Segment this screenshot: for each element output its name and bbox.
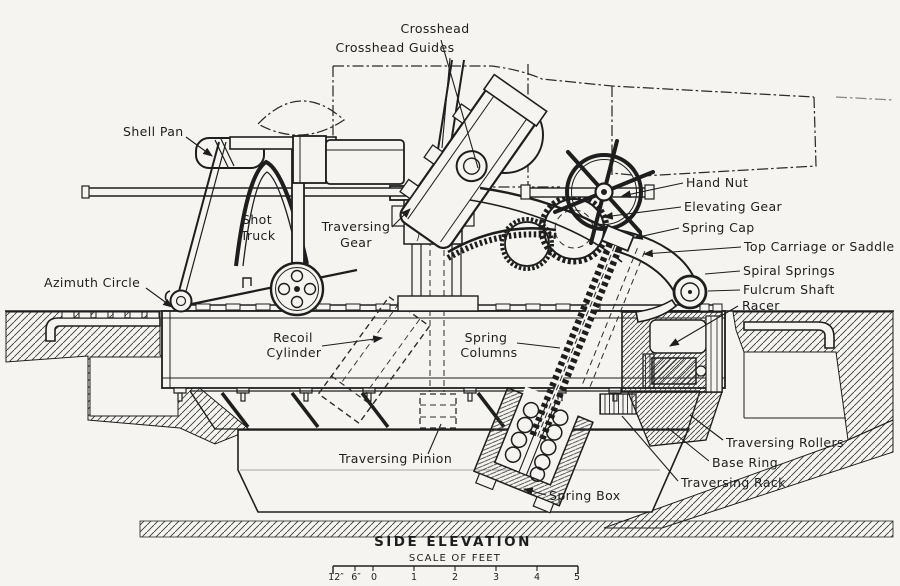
label-base-ring: Base Ring xyxy=(712,455,778,470)
label-spring-columns-2: Columns xyxy=(460,345,517,360)
scale-caption: SCALE OF FEET xyxy=(409,553,501,564)
label-shot-truck-2: Truck xyxy=(240,228,276,243)
label-recoil-cylinder-2: Cylinder xyxy=(267,345,322,360)
label-traversing-rollers: Traversing Rollers xyxy=(725,435,844,450)
engraving-page: Crosshead Crosshead Guides Shell Pan Sho… xyxy=(0,0,900,586)
scale-tick-6in: 6″ xyxy=(351,572,361,583)
traversing-pinion xyxy=(420,394,456,428)
label-spring-columns-1: Spring xyxy=(465,330,508,345)
scale-bar: 12″ 6″ 0 1 2 3 4 5 xyxy=(328,566,580,583)
traversing-roller xyxy=(643,354,706,388)
label-traversing-gear-2: Gear xyxy=(340,235,372,250)
truck-rear-wheel xyxy=(166,291,192,312)
label-hand-nut: Hand Nut xyxy=(686,175,748,190)
loading-tray-blocks xyxy=(293,136,404,184)
label-traversing-pinion: Traversing Pinion xyxy=(338,451,452,466)
scale-tick-2: 2 xyxy=(452,572,458,583)
scale-tick-1: 1 xyxy=(411,572,417,583)
scale-tick-4: 4 xyxy=(534,572,540,583)
rammer-bar xyxy=(85,188,452,196)
elevating-gear-train xyxy=(502,196,607,269)
label-azimuth-circle: Azimuth Circle xyxy=(44,275,140,290)
label-spiral-springs: Spiral Springs xyxy=(743,263,835,278)
scale-tick-12in: 12″ xyxy=(328,572,344,583)
crosshead-assembly xyxy=(387,60,640,262)
scale-tick-3: 3 xyxy=(493,572,499,583)
scale-tick-0: 0 xyxy=(371,572,377,583)
label-top-carriage: Top Carriage or Saddle xyxy=(743,239,894,254)
label-crosshead-guides: Crosshead Guides xyxy=(335,40,454,55)
breech-phantom-lens xyxy=(258,101,344,135)
label-shell-pan: Shell Pan xyxy=(123,124,184,139)
handwheel-axle xyxy=(526,188,650,197)
label-traversing-gear-1: Traversing xyxy=(321,219,391,234)
label-spring-cap: Spring Cap xyxy=(682,220,755,235)
racer-box-window xyxy=(650,320,706,353)
label-traversing-rack: Traversing Rack xyxy=(680,475,786,490)
drawing-title: SIDE ELEVATION xyxy=(374,534,532,550)
title-block: SIDE ELEVATION SCALE OF FEET xyxy=(374,534,532,564)
gun-carriage-side-elevation-diagram: Crosshead Crosshead Guides Shell Pan Sho… xyxy=(0,0,900,586)
truck-main-wheel xyxy=(271,263,323,315)
label-crosshead: Crosshead xyxy=(400,21,469,36)
label-spring-box: Spring Box xyxy=(549,488,621,503)
label-shot-truck-1: Shot xyxy=(242,212,272,227)
label-racer: Racer xyxy=(742,298,780,313)
label-fulcrum-shaft: Fulcrum Shaft xyxy=(743,282,835,297)
scale-tick-5: 5 xyxy=(574,572,580,583)
label-elevating-gear: Elevating Gear xyxy=(684,199,783,214)
label-recoil-cylinder-1: Recoil xyxy=(273,330,313,345)
